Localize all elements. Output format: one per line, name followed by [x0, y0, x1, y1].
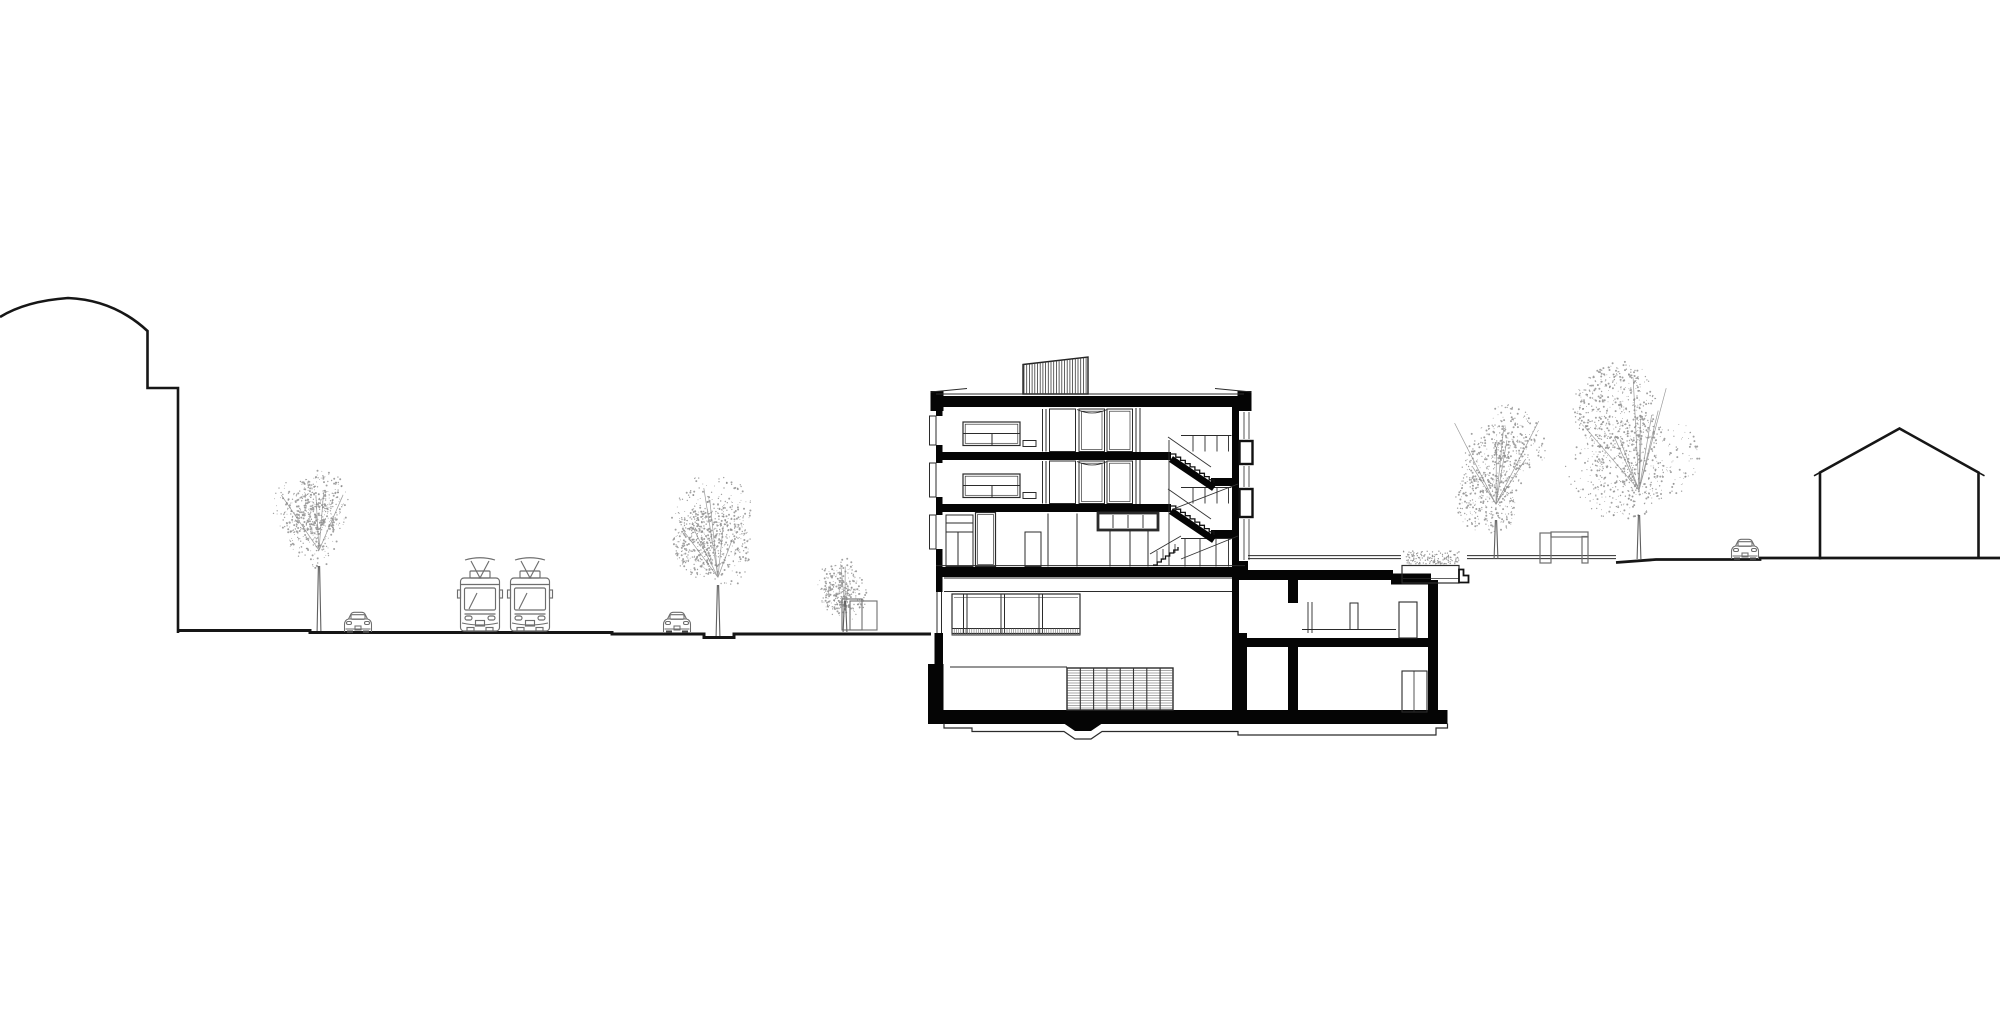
foundation-slab	[928, 710, 1448, 724]
section-building	[928, 355, 1469, 739]
garden-wing-interior	[1302, 602, 1427, 712]
wing-mid-slab	[1239, 638, 1430, 647]
tree-1	[274, 471, 348, 631]
foundation-outline	[944, 724, 1448, 740]
stairwell-window-upper	[1240, 441, 1253, 464]
structure-cut-fills	[928, 391, 1448, 731]
stair-railing	[1150, 536, 1181, 554]
hatch-grille-v	[1067, 668, 1160, 710]
tree-trunk	[716, 585, 720, 636]
tree-5	[1566, 362, 1700, 559]
street-ground-line	[178, 631, 931, 638]
tree-trunk	[1637, 515, 1641, 559]
right-neighbor-house	[1814, 429, 1985, 560]
stair-steps-2	[1171, 506, 1214, 535]
tree-branch	[1455, 423, 1496, 504]
floor-slab-3	[938, 452, 1171, 460]
tree-4	[1455, 405, 1545, 559]
stair-steps-1	[1171, 454, 1214, 483]
planter-vegetation	[1404, 551, 1460, 564]
tram-1	[458, 558, 503, 631]
floor-4-interior	[963, 408, 1232, 452]
tree-branch	[1614, 437, 1639, 490]
bench-frame	[842, 599, 877, 630]
tree-foliage	[283, 471, 346, 568]
tram-2	[508, 558, 553, 631]
tree-foliage	[1456, 405, 1545, 533]
stair-flight-band	[1171, 459, 1214, 488]
drawing-canvas	[0, 0, 2000, 1027]
deck-slab	[936, 567, 1245, 577]
tree-trunk	[317, 566, 321, 631]
car-3	[1732, 539, 1759, 560]
left-neighbor-building	[0, 298, 178, 633]
garden-ground-line	[1248, 556, 2000, 563]
planter-edge-profile	[1459, 570, 1469, 583]
wing-roof-slab	[1239, 570, 1393, 580]
vehicles-layer	[345, 539, 1759, 633]
tree-branch	[1585, 427, 1639, 491]
car-1	[345, 612, 372, 633]
car-2	[664, 612, 691, 633]
tree-foliage	[1458, 409, 1544, 530]
roof-slab	[936, 396, 1244, 407]
interior-linework	[930, 389, 1469, 740]
stair-flight-band	[1171, 511, 1214, 540]
stairwell-window-lower	[1240, 489, 1253, 517]
tree-foliage	[674, 478, 750, 583]
section-drawing	[0, 0, 2000, 1027]
floor-slab-2	[938, 504, 1171, 512]
tree-2	[672, 478, 750, 636]
tree-trunk	[1494, 520, 1498, 559]
